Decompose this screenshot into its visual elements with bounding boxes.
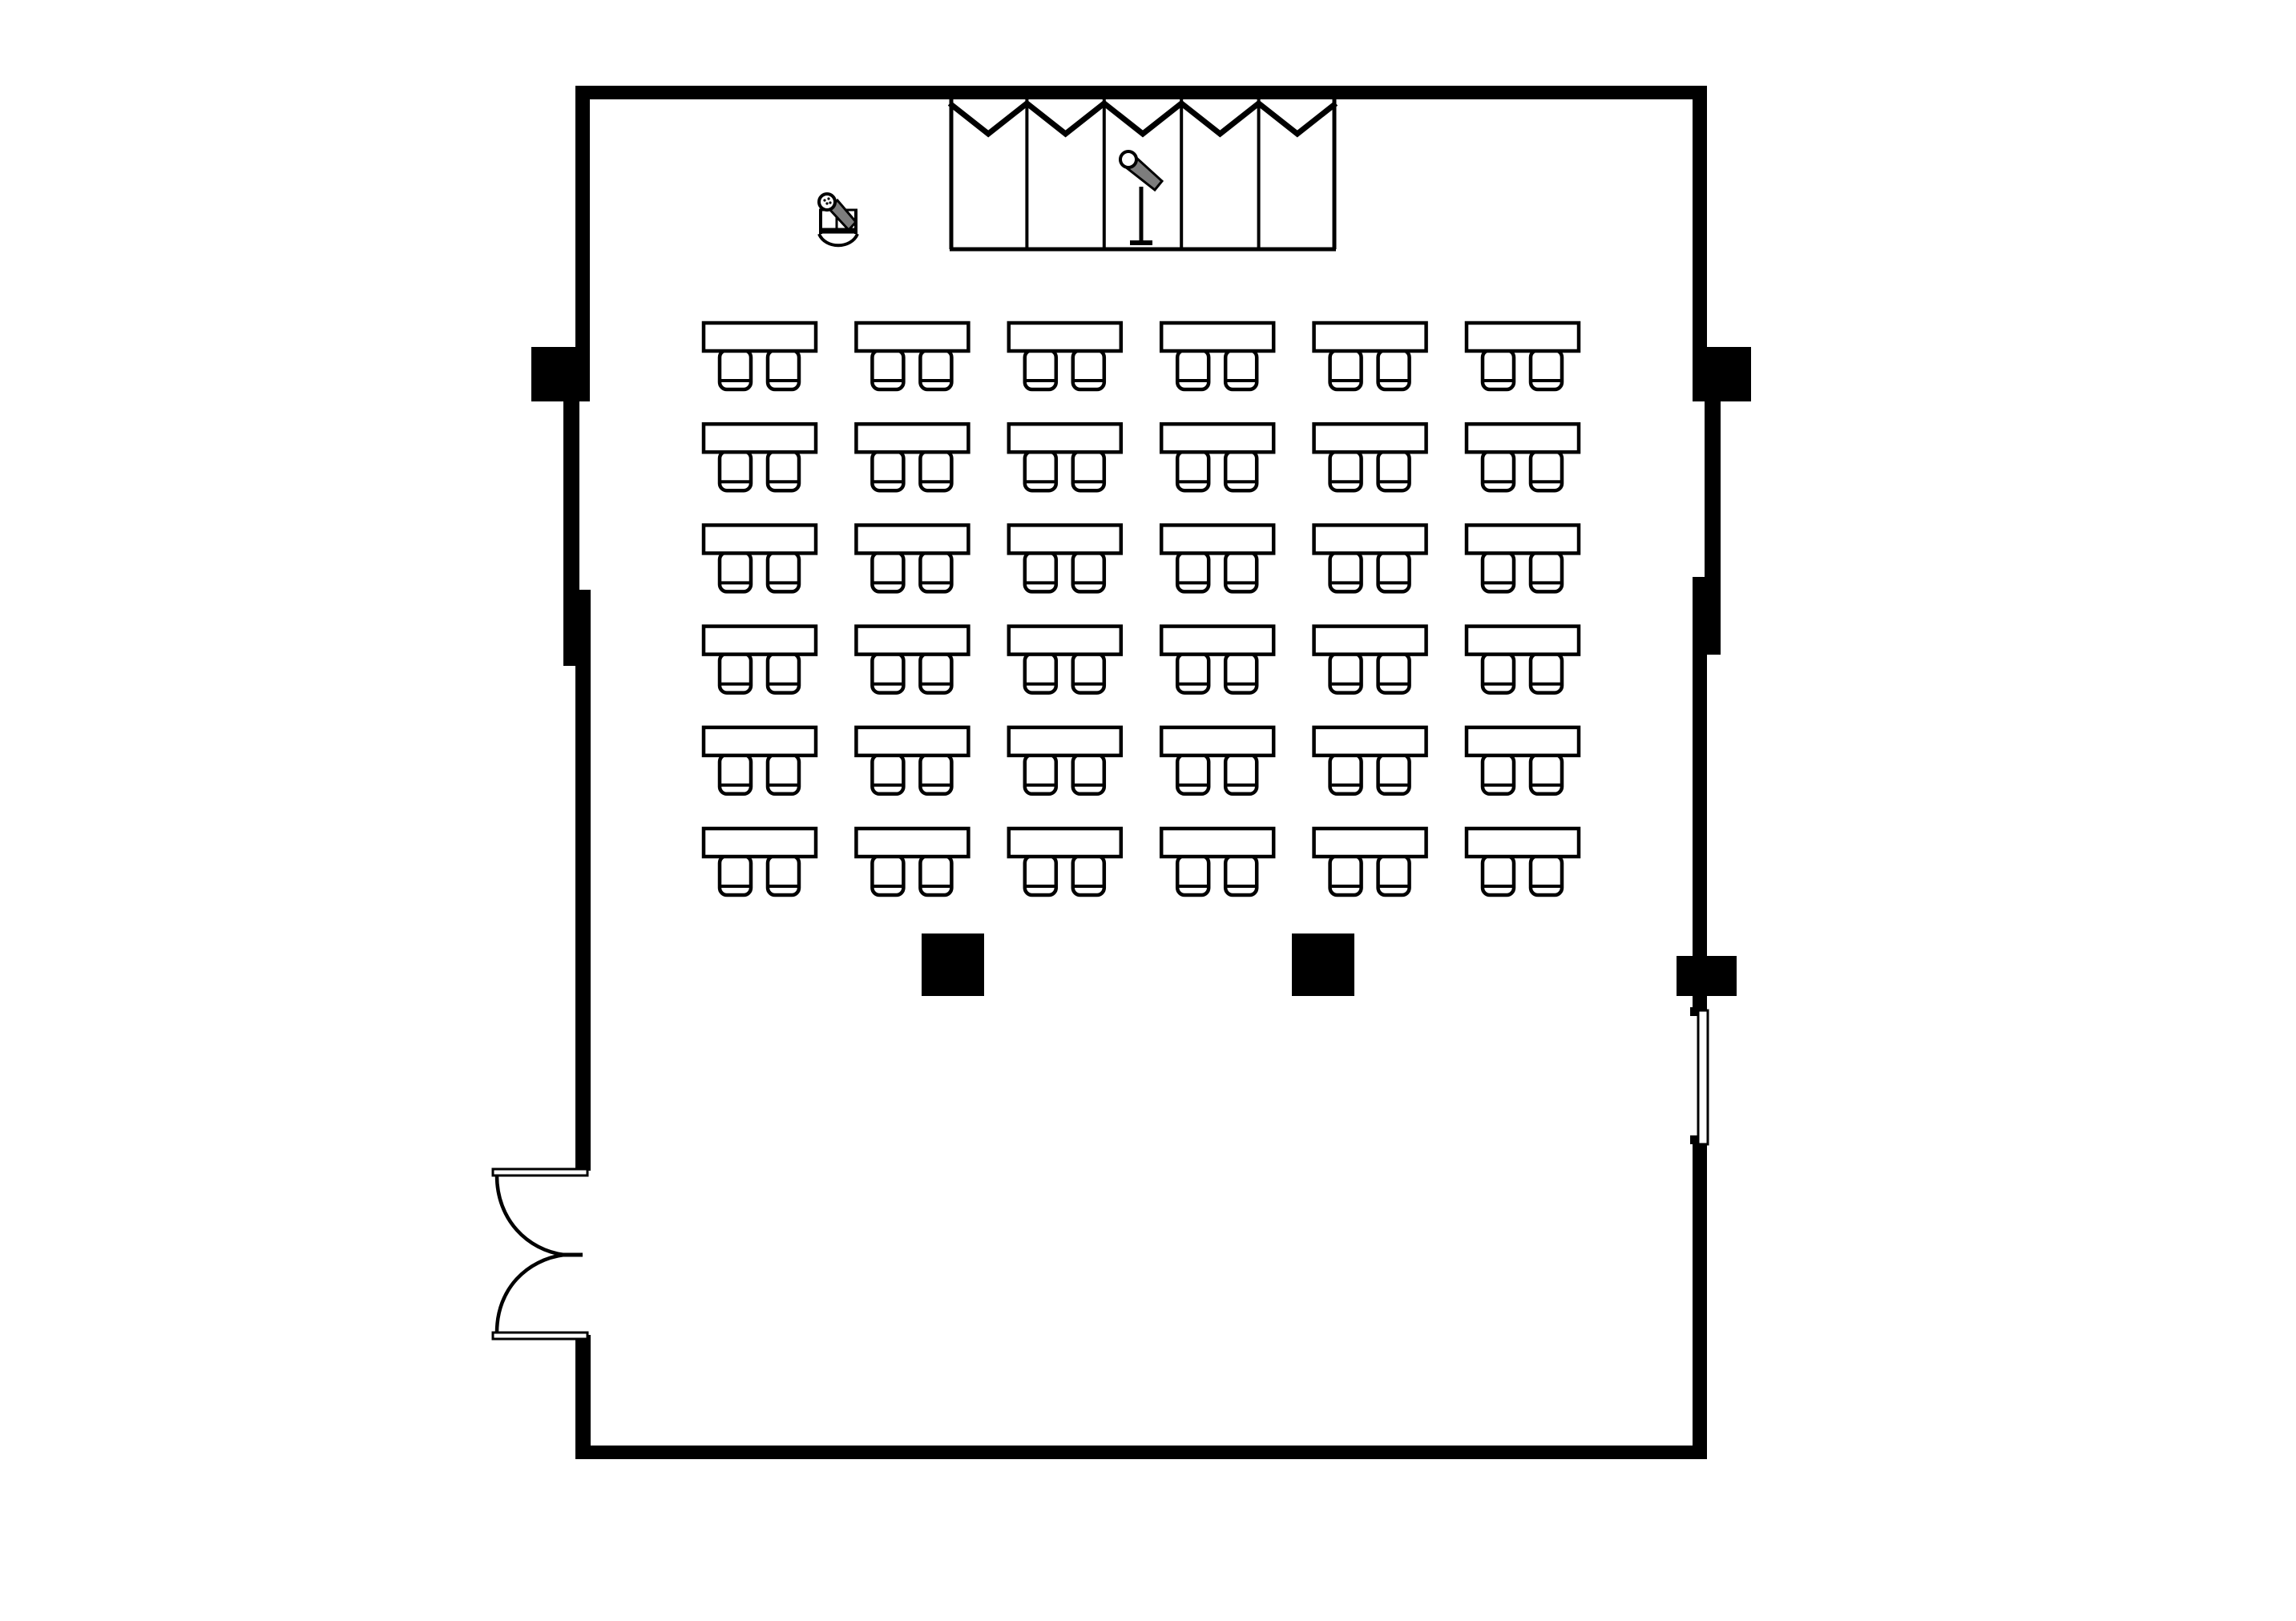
desk-table [1314,728,1426,756]
chair-2 [1531,451,1562,490]
pillar-left [922,933,984,996]
chair-1 [720,451,751,490]
chair-2 [1225,654,1257,693]
lectern-mic-grille-dot [829,201,831,204]
chair-1 [1177,350,1209,389]
desk-table [704,627,816,655]
pier-left [563,590,591,666]
desk-table [856,627,968,655]
desk-table [1467,627,1579,655]
desk-table [704,728,816,756]
desk-table [1009,525,1121,553]
chair-2 [1225,755,1257,794]
chair-2 [1378,654,1410,693]
chair-1 [1177,552,1209,591]
chair-1 [872,856,903,895]
lectern-mic-grille-dot [823,199,825,201]
wall-top [575,86,1707,99]
desk-r3-c1 [704,525,816,591]
desk-table [1467,424,1579,452]
desk-r5-c6 [1467,728,1579,794]
chair-2 [768,552,799,591]
chair-1 [720,755,751,794]
chair-1 [1330,755,1362,794]
double-door-top-frame [493,1169,587,1175]
desk-r1-c2 [856,323,968,389]
desk-r1-c6 [1467,323,1579,389]
desk-table [856,728,968,756]
desk-r4-c2 [856,627,968,693]
chair-1 [1483,350,1514,389]
desk-r3-c4 [1161,525,1273,591]
chair-2 [1225,451,1257,490]
wall-right-upper [1693,86,1707,350]
chair-2 [1073,552,1104,591]
chair-1 [1483,856,1514,895]
desk-r2-c5 [1314,424,1426,490]
chair-1 [1483,654,1514,693]
chair-1 [1330,856,1362,895]
desk-table [704,424,816,452]
chair-2 [768,654,799,693]
double-door-swing-arc-top [497,1175,564,1255]
chair-1 [1330,350,1362,389]
single-door-leaf [1698,1010,1708,1144]
desk-table [1314,323,1426,351]
double-door-bottom-frame [493,1333,587,1339]
desk-table [1314,424,1426,452]
chair-1 [1025,451,1056,490]
chair-1 [1025,350,1056,389]
chair-2 [1378,350,1410,389]
chair-2 [1378,856,1410,895]
chair-1 [720,654,751,693]
desk-r3-c6 [1467,525,1579,591]
chair-2 [1073,350,1104,389]
chair-2 [768,755,799,794]
desk-table [1009,323,1121,351]
desk-r6-c4 [1161,829,1273,895]
chair-2 [1378,755,1410,794]
chair-1 [1177,451,1209,490]
wall-left-upper [575,86,590,350]
wall-left-jog [563,400,579,592]
desk-r4-c6 [1467,627,1579,693]
desk-r5-c5 [1314,728,1426,794]
pier-right [1693,577,1721,655]
desk-table [1161,525,1273,553]
chair-2 [1225,856,1257,895]
desk-table [704,323,816,351]
desk-table [1467,323,1579,351]
chair-2 [920,654,951,693]
desk-r1-c4 [1161,323,1273,389]
lectern-mic-grille-dot [825,202,828,204]
desk-table [1009,829,1121,857]
pilaster-right-door [1677,956,1737,996]
desk-r1-c5 [1314,323,1426,389]
chair-1 [1025,755,1056,794]
desk-table [856,424,968,452]
pillar-right [1292,933,1354,996]
chair-1 [1330,451,1362,490]
desk-table [1467,728,1579,756]
lectern-curved-front [819,234,857,245]
chair-2 [920,755,951,794]
desk-table [704,829,816,857]
desk-r4-c1 [704,627,816,693]
desk-r1-c1 [704,323,816,389]
chair-2 [920,856,951,895]
desk-table [856,525,968,553]
desk-r4-c5 [1314,627,1426,693]
desk-table [1009,728,1121,756]
chair-1 [872,654,903,693]
chair-2 [1531,755,1562,794]
wall-right-jog [1705,400,1721,579]
chair-1 [872,755,903,794]
chair-1 [1025,552,1056,591]
chair-2 [920,552,951,591]
chair-1 [872,451,903,490]
lectern-mic-grille-dot [827,197,829,200]
chair-2 [768,856,799,895]
desk-table [1314,525,1426,553]
desk-r3-c2 [856,525,968,591]
desk-r5-c3 [1009,728,1121,794]
desk-table [1161,323,1273,351]
desk-r2-c4 [1161,424,1273,490]
chair-1 [872,350,903,389]
chair-2 [1225,552,1257,591]
chair-1 [1330,654,1362,693]
double-door-swing-arc-bottom [497,1255,564,1333]
chair-2 [1531,552,1562,591]
microphone-head-icon [1120,151,1136,167]
desk-r6-c2 [856,829,968,895]
chair-2 [1378,552,1410,591]
chair-1 [1330,552,1362,591]
wall-right-mid [1693,653,1707,958]
desk-r3-c5 [1314,525,1426,591]
desk-r2-c6 [1467,424,1579,490]
floor-plan-svg [0,0,2296,1621]
chair-2 [920,451,951,490]
desk-table [1314,627,1426,655]
chair-1 [1025,654,1056,693]
chair-2 [1531,856,1562,895]
desk-r3-c3 [1009,525,1121,591]
desk-r2-c1 [704,424,816,490]
chair-2 [920,350,951,389]
desk-r5-c1 [704,728,816,794]
chair-2 [768,451,799,490]
stage-curtain-zigzag [950,103,1336,134]
wall-left-mid [575,664,591,1171]
desk-r5-c2 [856,728,968,794]
chair-1 [1177,755,1209,794]
chair-1 [1483,552,1514,591]
desk-r2-c3 [1009,424,1121,490]
desk-table [1467,829,1579,857]
chair-2 [1378,451,1410,490]
desk-r6-c5 [1314,829,1426,895]
chair-1 [1025,856,1056,895]
desk-table [704,525,816,553]
chair-1 [872,552,903,591]
chair-2 [1531,350,1562,389]
desk-table [1314,829,1426,857]
desk-r6-c3 [1009,829,1121,895]
chair-1 [720,552,751,591]
floor-plan-canvas [0,0,2296,1621]
desk-table [1161,424,1273,452]
wall-left-lower [575,1335,591,1459]
chair-2 [1073,654,1104,693]
desk-table [1009,424,1121,452]
lectern-mic-head-icon [819,194,835,210]
chair-2 [1225,350,1257,389]
desk-r4-c3 [1009,627,1121,693]
desk-table [1009,627,1121,655]
chair-1 [1177,654,1209,693]
chair-2 [1073,755,1104,794]
desk-r4-c4 [1161,627,1273,693]
pilaster-right [1693,347,1751,401]
desk-table [856,323,968,351]
desk-table [856,829,968,857]
chair-2 [768,350,799,389]
wall-bottom [575,1446,1707,1459]
chair-1 [720,350,751,389]
desk-r2-c2 [856,424,968,490]
chair-2 [1073,451,1104,490]
desk-r6-c1 [704,829,816,895]
chair-1 [1177,856,1209,895]
desk-table [1161,728,1273,756]
chair-1 [1483,755,1514,794]
chair-2 [1073,856,1104,895]
desk-table [1467,525,1579,553]
desk-r1-c3 [1009,323,1121,389]
desk-r5-c4 [1161,728,1273,794]
chair-2 [1531,654,1562,693]
chair-1 [1483,451,1514,490]
chair-1 [720,856,751,895]
pilaster-left [531,347,590,401]
desk-table [1161,829,1273,857]
desk-r6-c6 [1467,829,1579,895]
wall-right-lower [1693,1143,1707,1459]
desk-table [1161,627,1273,655]
